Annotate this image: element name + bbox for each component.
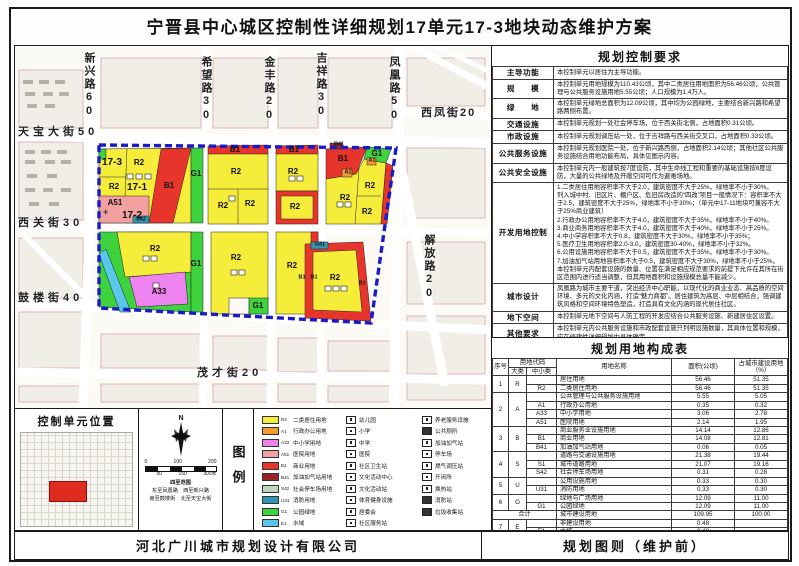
unit-highlight bbox=[49, 481, 87, 502]
road-label-xinxing: 新兴路60 bbox=[81, 52, 97, 119]
parcel-label: B1 bbox=[298, 275, 305, 281]
table-row: 1R居住用地56.4651.35 bbox=[493, 376, 788, 384]
table-row: 5U公用设施用地0.330.30 bbox=[493, 477, 788, 485]
location-mini-map bbox=[20, 432, 133, 527]
parcel-label: R2 bbox=[362, 208, 372, 216]
legend-column-facilities-1: 幼儿园 小学 中学 医院 社区卫生站 文化活动中心 文化活动站 体育健身设施 居… bbox=[346, 415, 418, 528]
table-row: 规 模本控制单元用地规模为110.43公顷，其中二类居住用地面积为56.46公顷… bbox=[493, 79, 788, 98]
facility-icon bbox=[346, 450, 356, 458]
road-label-tianbao: 天宝大街50 bbox=[18, 123, 98, 139]
road-label-xiwang: 希望路30 bbox=[198, 56, 214, 123]
parcel-label: B1 bbox=[230, 146, 240, 154]
legend-column-landuse: R2二类居住用地 A1行政办公用地 A33中小学用地 A51医院用地 B1商业用… bbox=[262, 415, 342, 528]
facility-icon bbox=[422, 462, 432, 470]
facility-icon bbox=[422, 508, 432, 516]
landuse-title: 规划用地构成表 bbox=[492, 338, 788, 358]
legend-panel: R2二类居住用地 A1行政办公用地 A33中小学用地 A51医院用地 B1商业用… bbox=[254, 409, 491, 530]
table-row: 其他要求本控制单元内公共服务设施和市政配套设施只列明设施数量，其具体位置和规模，… bbox=[493, 324, 788, 338]
facility-icon bbox=[346, 508, 356, 516]
table-row: 合计城市建设用地109.95100.00 bbox=[493, 511, 788, 519]
facility-icon bbox=[346, 439, 356, 447]
parcel-label: R2 bbox=[218, 202, 228, 210]
parcel-label: B1 bbox=[164, 182, 174, 190]
parcel-label: R2 bbox=[134, 159, 144, 167]
table-row: A1行政办公用地0.350.32 bbox=[493, 401, 788, 409]
compass-panel: N 0 100 200 50 150 300 bbox=[139, 409, 223, 530]
bounds-note: 四至范围 东至凤凰路 西至新兴路 南至鼓楼街 北至天宝大街 bbox=[149, 480, 211, 503]
bottom-strip: 控制单元位置 N 0 100 200 bbox=[15, 408, 491, 530]
parcel-label: R2 bbox=[340, 194, 350, 202]
facility-icon bbox=[346, 519, 356, 527]
parcel-label: R2 bbox=[231, 254, 241, 262]
table-row: 公共安全设施本控制单元内一般建筑按7度设防，其中生命线工程和重要的基础设施按8度… bbox=[493, 163, 788, 182]
legend-swatch bbox=[262, 496, 279, 504]
parcel-label: A1 bbox=[368, 158, 375, 164]
parcel-label: R2 bbox=[287, 262, 297, 270]
right-panel: 规划控制要求 主导功能本控制单元以居住为主导功能。 规 模本控制单元用地规模为1… bbox=[491, 46, 788, 530]
road-label-xifeng: 西凤街20 bbox=[421, 104, 476, 120]
sheet-name: 规划图则（维护前） bbox=[481, 532, 788, 559]
facility-icon bbox=[422, 439, 432, 447]
parcel-label: R2 bbox=[109, 183, 119, 191]
table-row: 公共服务设施本控制单元规划医院一处，位于新兴路西侧，占地面积2.14公顷；其他社… bbox=[493, 144, 788, 163]
road-label-fenghuang: 凤凰路50 bbox=[386, 56, 402, 123]
parcel-label: G1 bbox=[253, 302, 264, 310]
parcel-label: B1 bbox=[310, 275, 317, 281]
legend-swatch bbox=[262, 462, 279, 470]
table-row: 市政设施本控制单元规划调压站一处，位于吉祥路与西关街交叉口，占地面积0.33公顷… bbox=[493, 131, 788, 144]
table-row: 地下空间本控制单元地下空间与人防工程的开发应结合公共服务设施、新建居住区设置。 bbox=[493, 311, 788, 324]
control-requirements: 规划控制要求 主导功能本控制单元以居住为主导功能。 规 模本控制单元用地规模为1… bbox=[492, 46, 788, 338]
plan-map: + 17-3 R2 R2 17-1 B1 G1 A51 17-2 S42 B1 … bbox=[15, 46, 491, 408]
parcel-label: R2 bbox=[245, 200, 255, 208]
parcel-label: R2 bbox=[365, 182, 375, 190]
road-label-jixiang: 吉祥路30 bbox=[313, 52, 329, 119]
table-row: 交通设施本控制单元规划一处社会停车场，位于西关街北侧，占地面积0.31公顷。 bbox=[493, 118, 788, 131]
road-label-maocai: 茂才街20 bbox=[197, 364, 262, 380]
facility-icon bbox=[422, 473, 432, 481]
table-row: 2A公共管理与公共服务设施用地5.555.05 bbox=[493, 393, 788, 401]
parcel-label: U31 bbox=[315, 242, 325, 248]
parcel-label: A51 bbox=[108, 199, 123, 207]
facility-icon bbox=[346, 496, 356, 504]
facility-icon bbox=[422, 485, 432, 493]
company-name: 河北广川城市规划设计有限公司 bbox=[15, 532, 481, 559]
parcel-label: R2 bbox=[290, 203, 300, 211]
footer-bar: 河北广川城市规划设计有限公司 规划图则（维护前） bbox=[15, 530, 788, 559]
landuse-table: 序号 用地代码 用地名称 面积(公顷) 占城市建设用地（%） 大类 中小类 1R… bbox=[492, 358, 788, 530]
facility-icon bbox=[346, 427, 356, 435]
parcel-label: A1 bbox=[344, 170, 351, 176]
legend-swatch bbox=[262, 450, 279, 458]
parcel-label: G1 bbox=[191, 260, 202, 268]
legend-swatch bbox=[262, 439, 279, 447]
table-row: 城市设计凤凰路为城市主要干道，突出经济中心职能，以现代化的商业业态、高品质的空间… bbox=[493, 284, 788, 312]
legend-swatch bbox=[262, 519, 279, 527]
parcel-label: 17-1 bbox=[127, 183, 147, 193]
scale-bar: 0 100 200 50 150 300米 bbox=[145, 460, 217, 477]
page-title: 宁晋县中心城区控制性详细规划17单元17-3地块动态维护方案 bbox=[0, 13, 799, 38]
table-row: 7E非建设用地0.48 bbox=[493, 519, 788, 527]
table-row: 开发用地控制1.二类居住用地容积率不大于2.0，建筑密度不大于25%，绿地率不小… bbox=[493, 182, 788, 283]
table-row: U31消防用地0.330.30 bbox=[493, 486, 788, 494]
legend-column-facilities-2: 养老服务设施 公共厕所 加油加气站 停车场 燃气调压站 开闭所 换热站 消防站 … bbox=[422, 415, 487, 528]
legend-label-panel: 图例 bbox=[223, 409, 254, 530]
parcel-label: 17-3 bbox=[102, 158, 122, 168]
facility-icon bbox=[422, 450, 432, 458]
road-label-jinfeng: 金丰路20 bbox=[261, 56, 277, 123]
legend-swatch bbox=[262, 427, 279, 435]
parcel-label: R2 bbox=[150, 245, 160, 253]
legend-swatch bbox=[262, 485, 279, 493]
parcel-label: B41 bbox=[334, 142, 344, 148]
road-label-xiguan: 西关街30 bbox=[18, 214, 83, 230]
parcel-label: B1 bbox=[289, 146, 299, 154]
table-row: S1城市道路用地21.0719.16 bbox=[493, 460, 788, 468]
facility-icon bbox=[346, 416, 356, 424]
hospital-cross-icon: + bbox=[103, 207, 108, 217]
table-row: 4S道路与交通设施用地21.3819.44 bbox=[493, 452, 788, 460]
parcel-label: B1 bbox=[338, 155, 348, 163]
unit-location-title: 控制单元位置 bbox=[20, 412, 133, 432]
parcel-label: G1 bbox=[191, 170, 202, 178]
control-requirements-title: 规划控制要求 bbox=[492, 46, 788, 66]
legend-swatch bbox=[262, 508, 279, 516]
facility-icon bbox=[346, 485, 356, 493]
table-row: B1商业用地14.0812.81 bbox=[493, 435, 788, 443]
table-row: 主导功能本控制单元以居住为主导功能。 bbox=[493, 67, 788, 80]
parcel-label: R2 bbox=[231, 168, 241, 176]
table-row: G1公园绿地12.0911.00 bbox=[493, 502, 788, 510]
table-row: S42社会停车场用地0.310.28 bbox=[493, 469, 788, 477]
parcel-label: R2 bbox=[330, 274, 340, 282]
facility-icon bbox=[346, 473, 356, 481]
facility-icon bbox=[422, 416, 432, 424]
unit-location-panel: 控制单元位置 bbox=[15, 409, 139, 530]
road-label-gulou: 鼓楼街40 bbox=[18, 289, 83, 305]
facility-icon bbox=[422, 496, 432, 504]
table-row: R2二类居住用地56.4651.35 bbox=[493, 384, 788, 392]
legend-swatch bbox=[262, 473, 279, 481]
control-requirements-table: 主导功能本控制单元以居住为主导功能。 规 模本控制单元用地规模为110.43公顷… bbox=[492, 66, 788, 338]
table-header-row: 序号 用地代码 用地名称 面积(公顷) 占城市建设用地（%） bbox=[493, 359, 788, 368]
road-label-jiefang: 解放路20 bbox=[421, 234, 437, 301]
parcel-label: B1 bbox=[358, 281, 365, 287]
parcel-label: R2 bbox=[288, 168, 298, 176]
content-grid: + 17-3 R2 R2 17-1 B1 G1 A51 17-2 S42 B1 … bbox=[14, 45, 789, 560]
table-row: 绿 地本控制单元绿地总面积为12.09公顷，其中均为公园绿地，主要结合新兴路和希… bbox=[493, 99, 788, 118]
table-row: 3B商业服务业设施用地14.1412.86 bbox=[493, 427, 788, 435]
table-row: A51医院用地2.141.95 bbox=[493, 418, 788, 426]
parcel-label: S42 bbox=[136, 217, 146, 223]
table-row: A33中小学用地3.062.78 bbox=[493, 410, 788, 418]
legend-swatch bbox=[262, 416, 279, 424]
legend-title: 图例 bbox=[229, 445, 248, 495]
svg-text:N: N bbox=[178, 415, 183, 422]
table-row: B41加油加气站用地0.060.05 bbox=[493, 443, 788, 451]
parcel-label: A33 bbox=[152, 288, 167, 296]
table-row: 6G绿地与广场用地12.0911.00 bbox=[493, 494, 788, 502]
facility-icon bbox=[422, 427, 432, 435]
plan-sheet: 宁晋县中心城区控制性详细规划17单元17-3地块动态维护方案 bbox=[0, 0, 799, 566]
compass-icon: N bbox=[163, 412, 199, 458]
facility-icon bbox=[346, 462, 356, 470]
landuse-composition: 规划用地构成表 序号 用地代码 用地名称 面积(公顷) 占城市建设用地（%） 大… bbox=[492, 338, 788, 530]
